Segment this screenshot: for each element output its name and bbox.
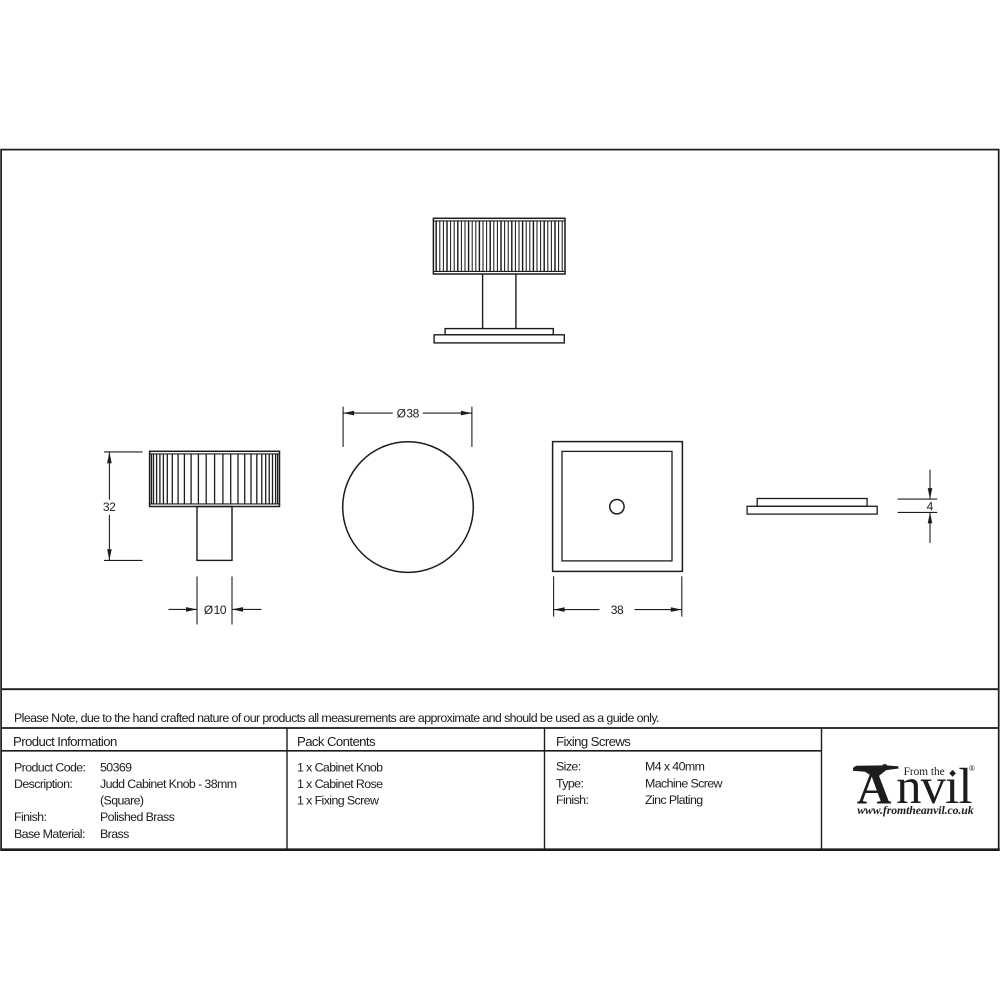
svg-text:Base Material:: Base Material: xyxy=(14,827,85,841)
svg-text:Pack Contents: Pack Contents xyxy=(297,734,376,749)
svg-text:Machine Screw: Machine Screw xyxy=(645,777,723,791)
svg-text:1 x Cabinet Rose: 1 x Cabinet Rose xyxy=(297,777,383,791)
svg-text:Ø: Ø xyxy=(204,603,213,617)
svg-text:Brass: Brass xyxy=(100,827,129,841)
svg-text:4: 4 xyxy=(927,499,934,513)
svg-text:Product Code:: Product Code: xyxy=(14,760,86,774)
svg-text:Ø: Ø xyxy=(397,406,406,420)
svg-text:M4 x 40mm: M4 x 40mm xyxy=(645,760,705,774)
svg-text:Finish:: Finish: xyxy=(556,793,588,807)
svg-text:Polished Brass: Polished Brass xyxy=(100,810,175,824)
svg-text:Type:: Type: xyxy=(556,777,583,791)
svg-text:32: 32 xyxy=(103,500,116,514)
svg-text:38: 38 xyxy=(611,603,624,617)
svg-text:From the: From the xyxy=(904,766,945,778)
svg-text:Finish:: Finish: xyxy=(14,810,46,824)
svg-text:Judd Cabinet Knob - 38mm: Judd Cabinet Knob - 38mm xyxy=(100,777,237,791)
svg-text:10: 10 xyxy=(214,603,227,617)
svg-text:www.fromtheanvil.co.uk: www.fromtheanvil.co.uk xyxy=(857,803,974,817)
svg-text:(Square): (Square) xyxy=(100,794,144,808)
svg-text:Product Information: Product Information xyxy=(13,734,117,749)
svg-text:1 x Cabinet Knob: 1 x Cabinet Knob xyxy=(297,760,383,774)
svg-text:1 x Fixing Screw: 1 x Fixing Screw xyxy=(297,794,379,808)
svg-text:38: 38 xyxy=(406,406,419,420)
svg-text:®: ® xyxy=(969,764,975,773)
svg-text:Description:: Description: xyxy=(14,777,72,791)
svg-text:Zinc Plating: Zinc Plating xyxy=(645,793,703,807)
svg-text:50369: 50369 xyxy=(100,760,132,774)
svg-text:Size:: Size: xyxy=(556,760,581,774)
svg-text:Fixing Screws: Fixing Screws xyxy=(556,734,631,749)
svg-text:Please Note, due to the hand c: Please Note, due to the hand crafted nat… xyxy=(14,711,659,725)
